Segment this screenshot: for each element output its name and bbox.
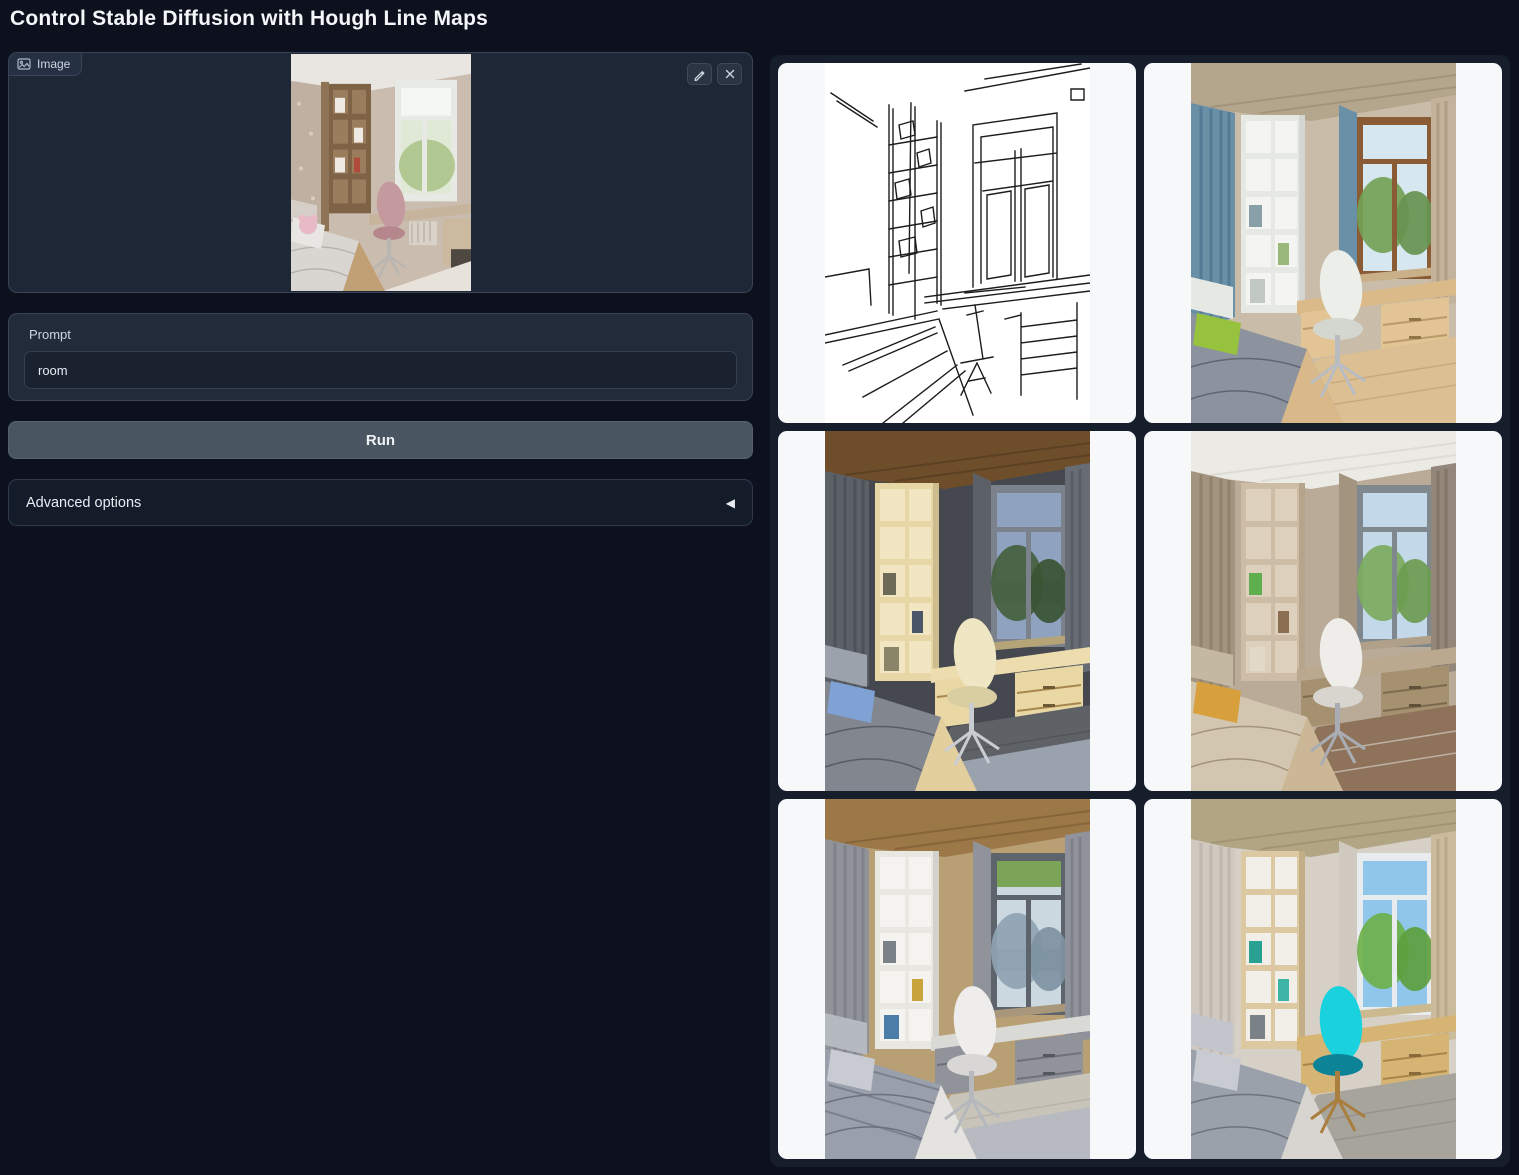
gallery-item-generated-3[interactable]: [1144, 431, 1502, 791]
image-toolbar: [687, 63, 742, 85]
gallery-image-3: [825, 431, 1090, 791]
edit-image-button[interactable]: [687, 63, 712, 85]
output-gallery: [770, 55, 1510, 1167]
gallery-item-hough-line-map[interactable]: [778, 63, 1136, 423]
advanced-options-label: Advanced options: [26, 495, 141, 511]
gallery-image-1: [825, 63, 1090, 423]
image-icon: [17, 58, 31, 70]
gallery-item-generated-4[interactable]: [778, 799, 1136, 1159]
prompt-label: Prompt: [29, 327, 737, 342]
run-button[interactable]: Run: [8, 421, 753, 459]
advanced-options-accordion[interactable]: Advanced options ◀: [8, 479, 753, 526]
image-input-label: Image: [37, 57, 70, 71]
prompt-panel: Prompt: [8, 313, 753, 401]
gallery-image-4: [1191, 431, 1456, 791]
gallery-image-5: [825, 799, 1090, 1159]
pencil-icon: [693, 68, 706, 81]
image-input-panel[interactable]: Image: [8, 52, 753, 293]
gallery-item-generated-2[interactable]: [778, 431, 1136, 791]
gallery-image-6: [1191, 799, 1456, 1159]
image-input-label-chip: Image: [8, 52, 82, 76]
gallery-item-generated-5[interactable]: [1144, 799, 1502, 1159]
clear-image-button[interactable]: [717, 63, 742, 85]
page-title: Control Stable Diffusion with Hough Line…: [10, 7, 488, 31]
close-icon: [724, 68, 736, 80]
uploaded-image: [291, 54, 471, 291]
input-column: Image: [8, 52, 753, 526]
gallery-item-generated-1[interactable]: [1144, 63, 1502, 423]
accordion-arrow-icon: ◀: [726, 496, 735, 510]
prompt-input[interactable]: [24, 351, 737, 389]
gallery-image-2: [1191, 63, 1456, 423]
